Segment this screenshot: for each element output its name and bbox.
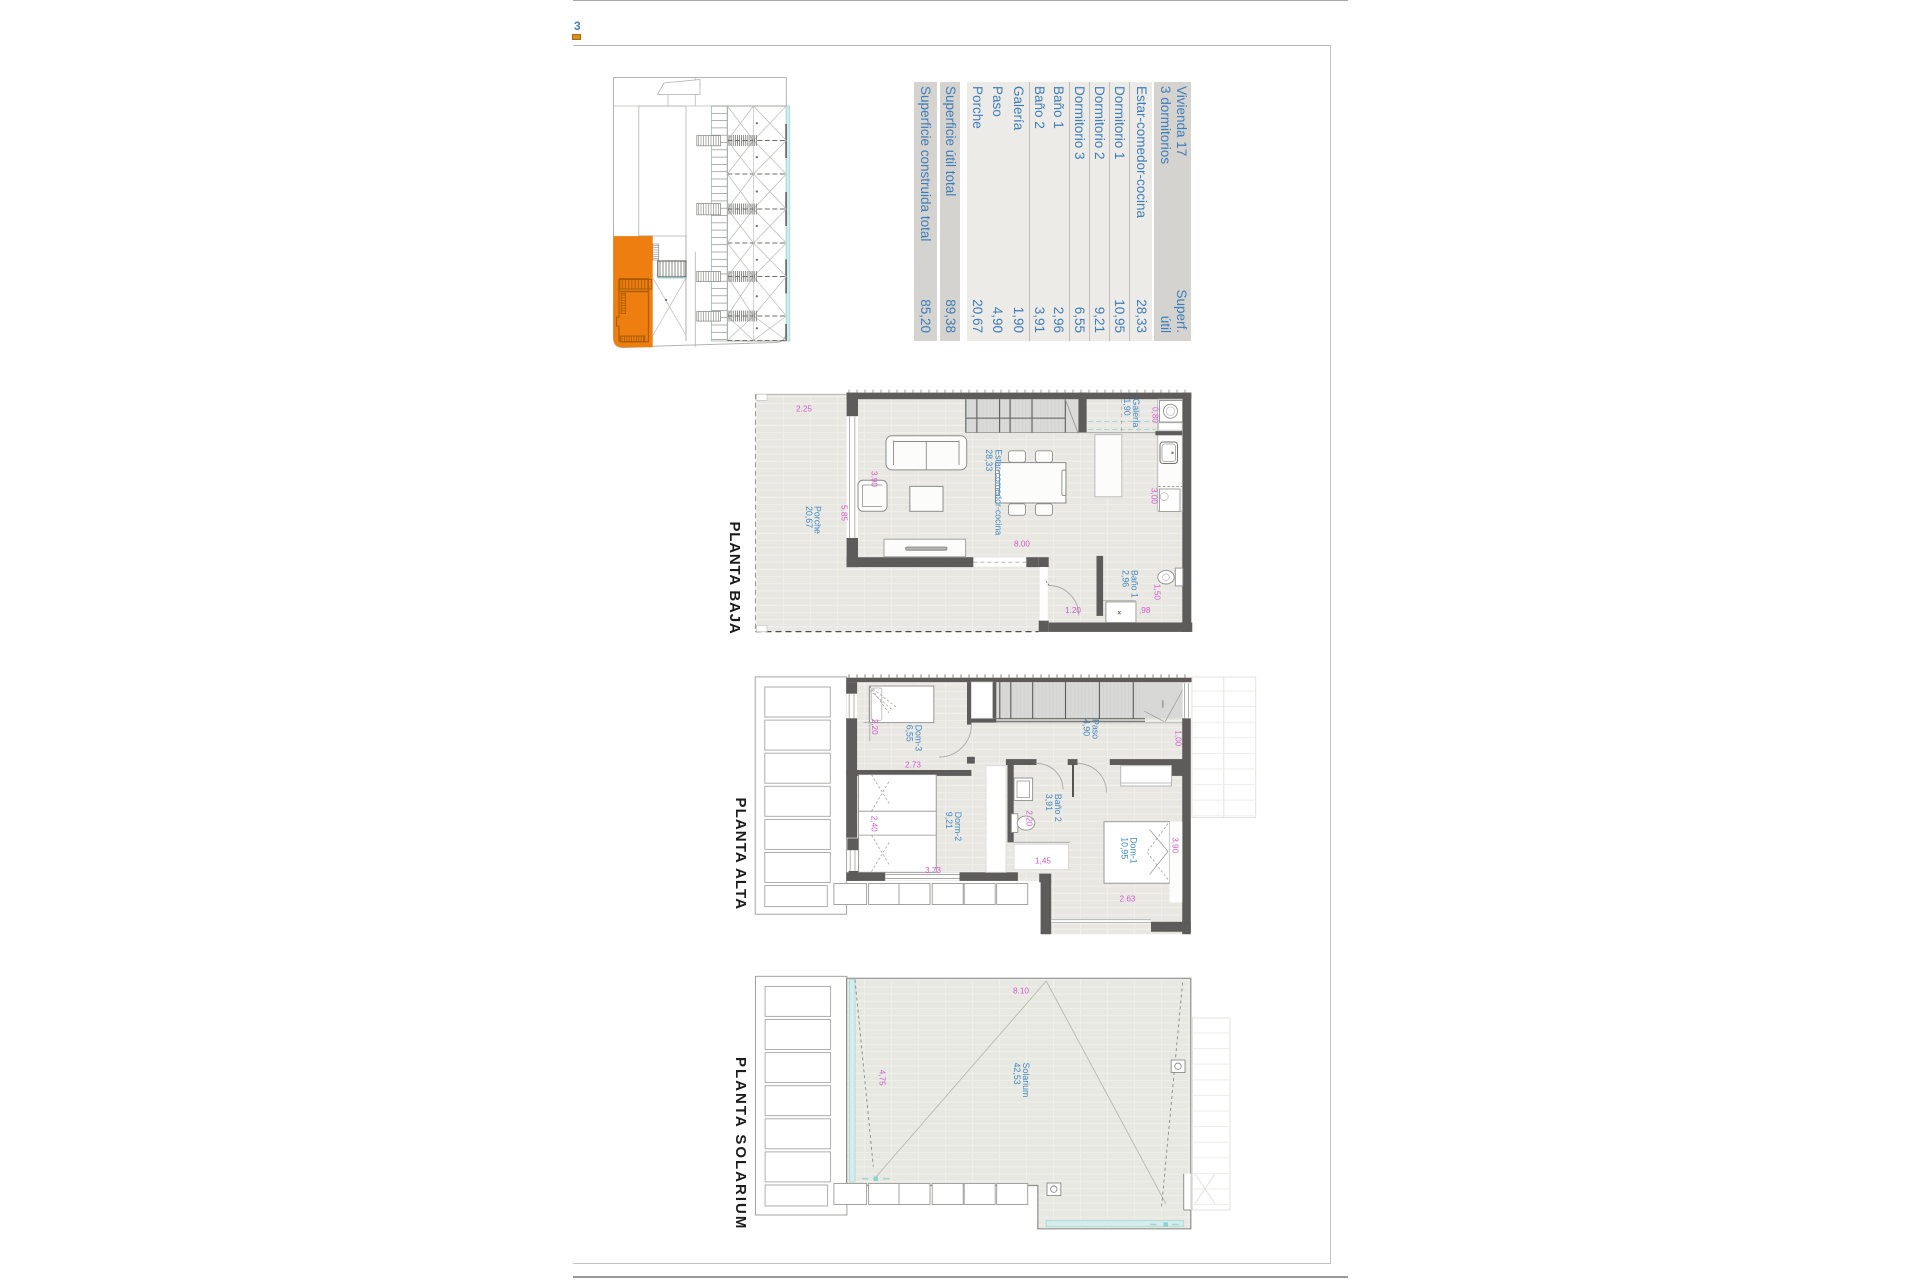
svg-text:4,75: 4,75 bbox=[878, 1070, 887, 1086]
svg-text:9,21: 9,21 bbox=[944, 812, 954, 829]
svg-text:3,91: 3,91 bbox=[1044, 794, 1054, 811]
svg-text:28,33: 28,33 bbox=[984, 449, 994, 471]
svg-text:4,90: 4,90 bbox=[1082, 719, 1092, 736]
svg-text:3.73: 3.73 bbox=[925, 866, 941, 875]
svg-text:8.10: 8.10 bbox=[1013, 987, 1029, 996]
svg-text:2,96: 2,96 bbox=[1121, 570, 1131, 587]
svg-text:0,80: 0,80 bbox=[1151, 407, 1160, 423]
svg-text:2.25: 2.25 bbox=[796, 405, 812, 414]
svg-text:3,00: 3,00 bbox=[1150, 488, 1159, 504]
svg-text:5.85: 5.85 bbox=[840, 505, 849, 521]
svg-text:1,90: 1,90 bbox=[1122, 399, 1132, 416]
svg-text:3.90: 3.90 bbox=[870, 471, 879, 487]
svg-text:42,53: 42,53 bbox=[1012, 1063, 1022, 1085]
svg-text:,98: ,98 bbox=[1139, 606, 1151, 615]
svg-text:PLANTA ALTA: PLANTA ALTA bbox=[732, 798, 749, 911]
svg-text:1.20: 1.20 bbox=[1065, 606, 1081, 615]
svg-text:6,55: 6,55 bbox=[905, 725, 915, 742]
svg-text:20,67: 20,67 bbox=[804, 506, 814, 528]
svg-text:10,95: 10,95 bbox=[1120, 837, 1130, 859]
svg-text:8.00: 8.00 bbox=[1014, 540, 1030, 549]
svg-text:Estar-comedor-cocina: Estar-comedor-cocina bbox=[994, 449, 1004, 535]
svg-text:2,20: 2,20 bbox=[1025, 810, 1034, 826]
svg-text:2.63: 2.63 bbox=[1120, 895, 1136, 904]
svg-text:1,50: 1,50 bbox=[1153, 584, 1162, 600]
svg-text:2,20: 2,20 bbox=[870, 719, 879, 735]
svg-text:PLANTA SOLARIUM: PLANTA SOLARIUM bbox=[732, 1057, 749, 1230]
svg-text:1,00: 1,00 bbox=[1174, 730, 1183, 746]
svg-text:1,45: 1,45 bbox=[1035, 857, 1051, 866]
svg-text:2.73: 2.73 bbox=[905, 761, 921, 770]
svg-text:2,40: 2,40 bbox=[870, 816, 879, 832]
svg-text:3,90: 3,90 bbox=[1171, 837, 1180, 853]
svg-text:PLANTA BAJA: PLANTA BAJA bbox=[726, 522, 743, 635]
